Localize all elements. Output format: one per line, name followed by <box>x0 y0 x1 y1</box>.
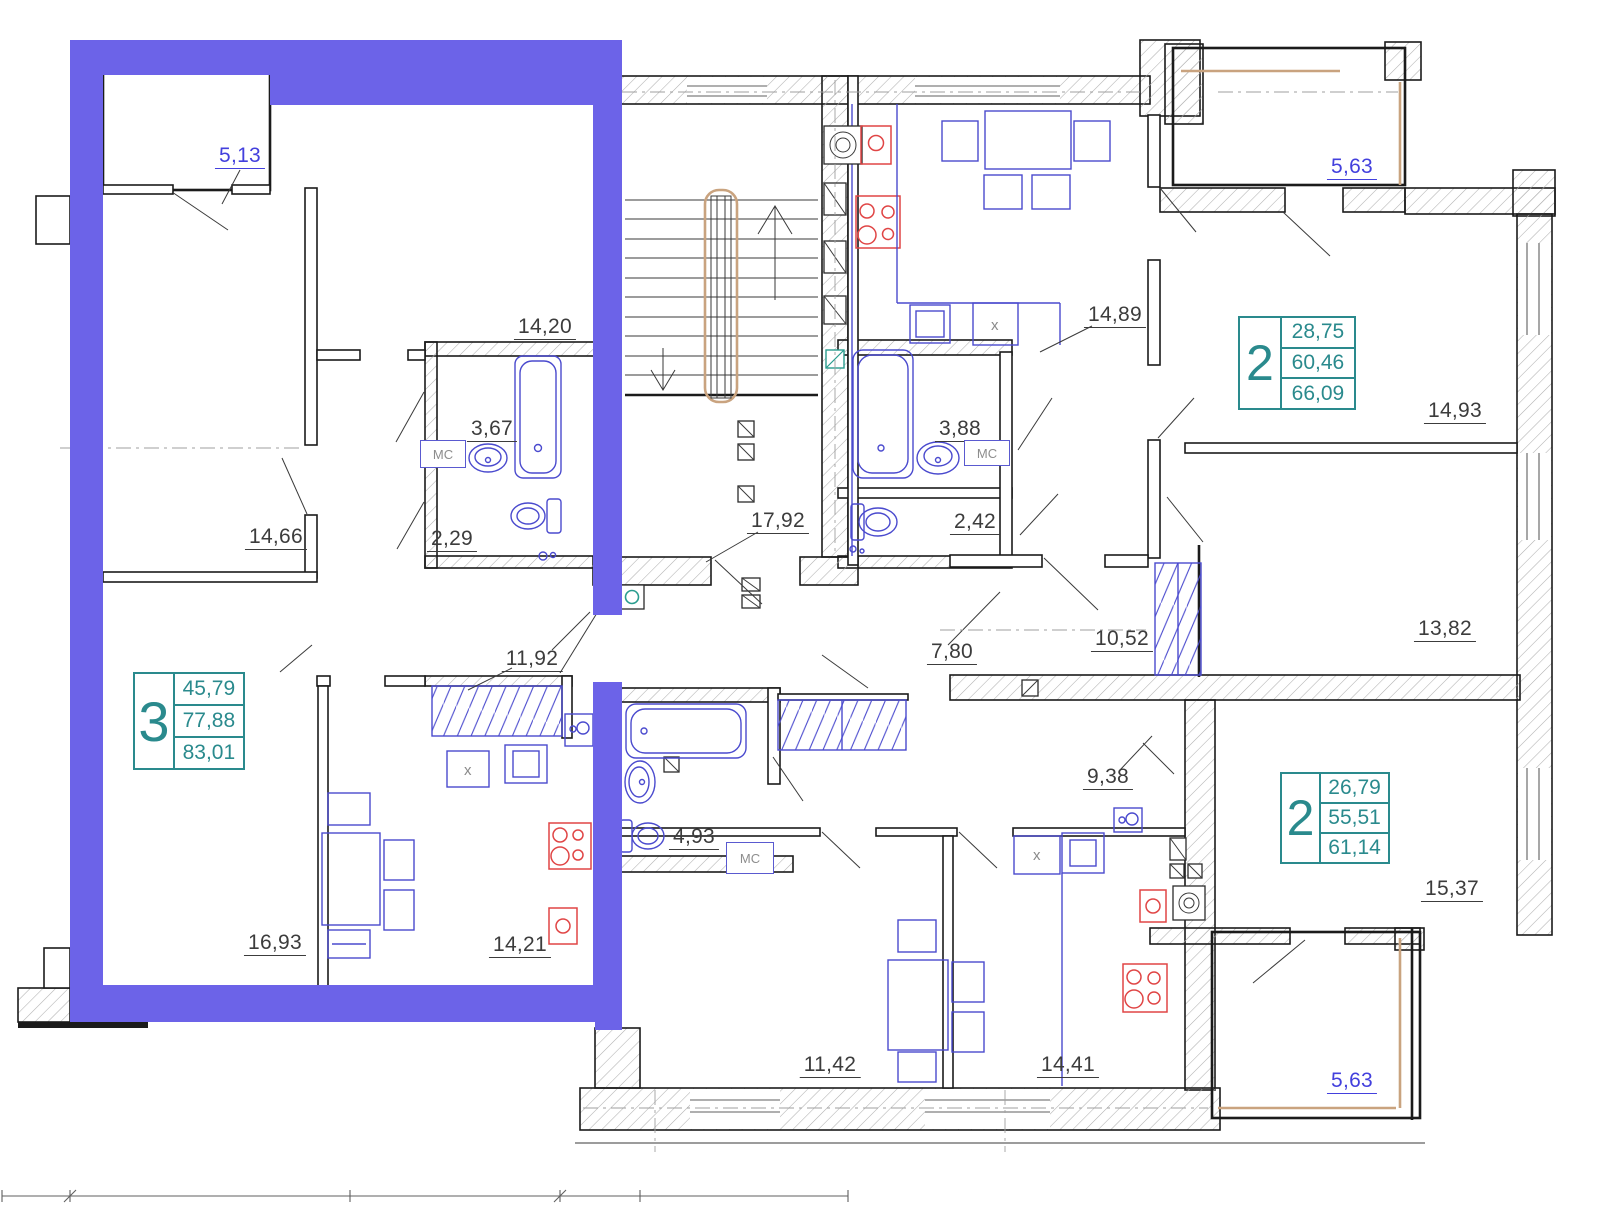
apartment-area: 60,46 <box>1282 349 1354 380</box>
apartment-rooms-count: 3 <box>135 674 175 768</box>
apartment-info-3-room: 3 45,79 77,88 83,01 <box>133 672 245 770</box>
area-label-kitchen-left-apt: 14,21 <box>489 934 551 958</box>
wardrobe-icon <box>778 700 906 750</box>
toilet-icon <box>511 499 561 560</box>
area-label-kitchen-bottom-apt: 14,41 <box>1037 1054 1099 1078</box>
apartment-rooms-count: 2 <box>1240 318 1282 408</box>
interior-walls <box>18 76 1517 1088</box>
area-label-wc-left: 2,29 <box>427 528 477 552</box>
svg-text:x: x <box>991 317 999 334</box>
oven-icon <box>549 908 577 944</box>
area-label-room-bottom-left: 16,93 <box>244 932 306 956</box>
vent-shaft-icons <box>620 126 1205 920</box>
area-label-hall-top-apt: 7,80 <box>927 641 977 665</box>
apartment-total-area: 83,01 <box>175 738 243 768</box>
exterior-walls <box>18 40 1555 1130</box>
bathtub-icon <box>626 704 746 758</box>
stove-icon <box>549 823 591 869</box>
sink-cabinet-icon: x <box>1014 836 1060 874</box>
apartment-area: 77,88 <box>175 706 243 738</box>
wardrobe-icon <box>1155 563 1201 675</box>
plan-drawing: x x <box>0 0 1600 1214</box>
dining-table-icon <box>322 793 414 958</box>
area-label-stairwell: 17,92 <box>747 510 809 534</box>
area-label-living-left: 14,66 <box>245 526 307 550</box>
apartment-living-area: 26,79 <box>1321 774 1388 804</box>
area-label-bathroom-left: 3,67 <box>467 418 517 442</box>
area-label-loggia-top-right: 5,63 <box>1327 156 1377 180</box>
sink-icon <box>625 761 655 803</box>
cabinet-mc-left: MC <box>420 440 466 468</box>
apartment-area: 55,51 <box>1321 804 1388 834</box>
area-label-room-bottom-middle: 11,42 <box>800 1054 861 1078</box>
dimension-line <box>2 1190 848 1202</box>
apartment-info-2-room-bottom: 2 26,79 55,51 61,14 <box>1280 772 1390 864</box>
stairs-icon <box>625 190 818 402</box>
floor-plan: x x <box>0 0 1600 1214</box>
area-label-wc-mid: 2,42 <box>950 511 1000 535</box>
dining-table-icon <box>942 111 1110 209</box>
wardrobe-icon <box>432 686 562 736</box>
bathtub-icon <box>853 350 913 478</box>
area-label-bedroom-bottom-right: 15,37 <box>1421 878 1483 902</box>
sink-icon <box>469 444 507 472</box>
apartment-total-area: 61,14 <box>1321 834 1388 862</box>
area-label-closet-left-apt: 11,92 <box>502 648 563 672</box>
loggia-bottom-right <box>1212 928 1420 1120</box>
stove-icon <box>1123 964 1167 1012</box>
kitchen-sink-red-icon <box>861 126 891 164</box>
area-label-bathroom-mid: 3,88 <box>935 418 985 442</box>
washing-machine-icon <box>505 745 547 783</box>
apartment-living-area: 28,75 <box>1282 318 1354 349</box>
apartment-rooms-count: 2 <box>1282 774 1321 862</box>
apartment-living-area: 45,79 <box>175 674 243 706</box>
svg-text:x: x <box>1033 847 1041 864</box>
area-label-bedroom-top-left: 14,20 <box>514 316 576 340</box>
dining-table-icon <box>888 920 984 1082</box>
loggia-top-left <box>103 58 270 194</box>
area-label-wardrobe-top-apt: 10,52 <box>1091 628 1153 652</box>
svg-text:x: x <box>464 762 472 779</box>
area-label-loggia-bottom-right: 5,63 <box>1327 1070 1377 1094</box>
windows <box>575 77 1551 1143</box>
apartment-total-area: 66,09 <box>1282 379 1354 408</box>
area-label-bathroom-bottom-apt: 4,93 <box>669 826 719 850</box>
sink-cabinet-icon: x <box>973 303 1018 345</box>
washing-machine-icon <box>1062 833 1104 873</box>
area-label-hall-bottom-apt: 9,38 <box>1083 766 1133 790</box>
sink-icon <box>917 442 959 474</box>
area-label-kitchen-top: 14,89 <box>1084 304 1146 328</box>
sink-cabinet-icon: x <box>447 751 489 787</box>
apartment-info-2-room-top: 2 28,75 60,46 66,09 <box>1238 316 1356 410</box>
area-label-bedroom-right-upper: 14,93 <box>1424 400 1486 424</box>
bathtub-icon <box>515 356 561 478</box>
cabinet-mc-mid: MC <box>964 440 1010 466</box>
area-label-bedroom-right-middle: 13,82 <box>1414 618 1476 642</box>
microwave-icon <box>910 305 950 343</box>
area-label-loggia-top-left: 5,13 <box>215 145 265 169</box>
oven-icon <box>1140 890 1166 922</box>
cabinet-mc-bottom: MC <box>726 842 774 874</box>
stove-icon <box>856 196 900 248</box>
